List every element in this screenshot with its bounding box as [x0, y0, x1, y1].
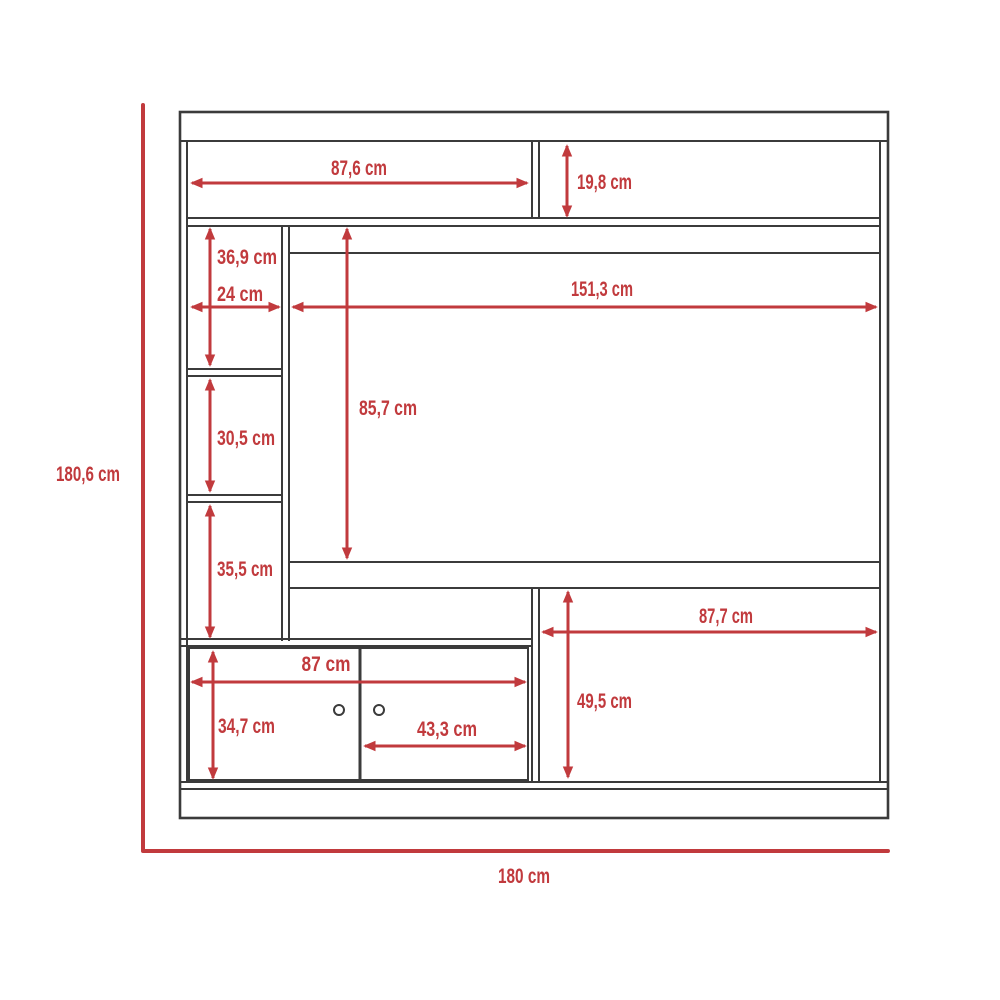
dim-label-top-shelf-height: 19,8 cm — [577, 171, 632, 194]
door-handle-left-icon — [334, 705, 344, 715]
cabinet-structure — [180, 112, 888, 818]
dim-label-right-opening-height: 49,5 cm — [577, 690, 632, 713]
furniture-dimension-diagram: 87,6 cm 19,8 cm 36,9 cm 24 cm 151,3 cm 8… — [0, 0, 1000, 1000]
dim-label-cubby-top-height: 36,9 cm — [217, 246, 277, 269]
overall-dimension-line — [143, 105, 888, 851]
dim-label-tv-opening-height: 85,7 cm — [359, 397, 417, 420]
dim-label-cubby-bottom-height: 35,5 cm — [217, 558, 273, 581]
diagram-canvas: 87,6 cm 19,8 cm 36,9 cm 24 cm 151,3 cm 8… — [0, 0, 1000, 1000]
dim-label-cabinet-width: 87 cm — [302, 653, 351, 676]
dimension-arrows — [143, 105, 888, 851]
door-handle-right-icon — [374, 705, 384, 715]
dim-label-overall-width: 180 cm — [498, 865, 550, 888]
dim-label-cabinet-height: 34,7 cm — [218, 715, 275, 738]
dim-label-top-shelf-width: 87,6 cm — [331, 157, 387, 180]
dim-label-cubby-middle-height: 30,5 cm — [217, 427, 275, 450]
dim-label-cubby-width: 24 cm — [217, 283, 263, 306]
dim-label-overall-height: 180,6 cm — [56, 463, 120, 486]
dimension-labels: 87,6 cm 19,8 cm 36,9 cm 24 cm 151,3 cm 8… — [56, 157, 753, 888]
dim-label-tv-opening-width: 151,3 cm — [571, 278, 633, 301]
dim-label-right-opening-width: 87,7 cm — [699, 605, 753, 628]
dim-label-door-width: 43,3 cm — [417, 718, 477, 741]
